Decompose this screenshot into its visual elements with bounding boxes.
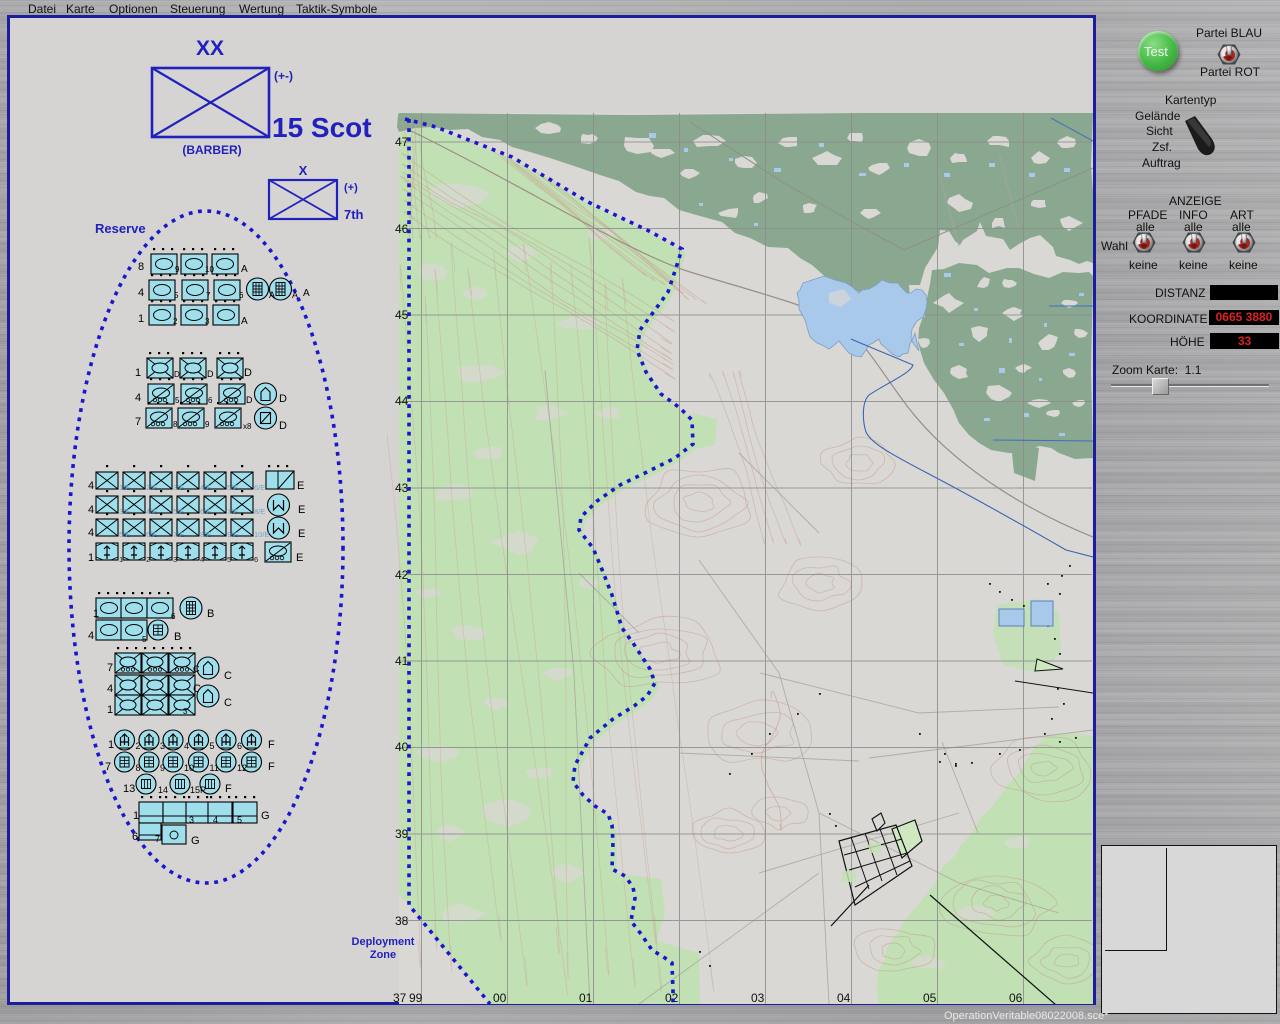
svg-text:9: 9	[175, 265, 180, 274]
svg-text:03: 03	[751, 991, 765, 1004]
svg-text:F: F	[268, 761, 275, 773]
svg-text:6: 6	[208, 396, 213, 405]
svg-text:8/E: 8/E	[254, 507, 265, 516]
svg-text:A: A	[241, 316, 248, 327]
svg-text:12: 12	[237, 763, 247, 773]
svg-text:G: G	[261, 810, 270, 822]
svg-text:1: 1	[107, 704, 113, 716]
svg-text:99: 99	[409, 991, 423, 1004]
svg-text:40: 40	[395, 740, 409, 754]
svg-text:7: 7	[107, 662, 113, 674]
svg-text:4: 4	[88, 527, 94, 539]
svg-text:3: 3	[160, 741, 165, 751]
svg-text:7th: 7th	[344, 207, 364, 222]
svg-text:9: 9	[160, 763, 165, 773]
svg-text:8: 8	[173, 420, 178, 429]
svg-text:10: 10	[184, 763, 194, 773]
svg-text:5: 5	[227, 555, 231, 564]
svg-text:1: 1	[138, 313, 144, 325]
svg-text:4: 4	[88, 630, 94, 642]
svg-text:4: 4	[88, 504, 94, 516]
svg-text:5: 5	[175, 396, 180, 405]
svg-text:F: F	[225, 783, 232, 795]
svg-text:D: D	[174, 370, 180, 379]
svg-text:G: G	[191, 835, 200, 847]
svg-text:D: D	[279, 420, 287, 432]
svg-text:5/E: 5/E	[119, 530, 130, 539]
svg-text:D: D	[244, 367, 252, 379]
svg-text:C: C	[193, 664, 200, 674]
svg-text:5/E: 5/E	[173, 507, 184, 516]
svg-text:A: A	[241, 264, 248, 275]
svg-text:7: 7	[135, 416, 141, 428]
svg-text:15 Scot: 15 Scot	[272, 112, 372, 143]
svg-text:1: 1	[133, 810, 139, 822]
svg-text:4: 4	[213, 815, 218, 825]
svg-text:D: D	[207, 369, 214, 379]
svg-text:7/E: 7/E	[227, 507, 238, 516]
svg-text:39: 39	[395, 827, 409, 841]
svg-text:(+): (+)	[344, 182, 358, 194]
svg-text:Reserve: Reserve	[95, 221, 146, 236]
svg-text:7: 7	[206, 291, 211, 300]
svg-text:E: E	[298, 504, 305, 516]
svg-text:5: 5	[142, 635, 147, 644]
svg-text:3/E: 3/E	[173, 483, 184, 492]
svg-text:3: 3	[205, 317, 210, 326]
svg-text:C: C	[224, 670, 232, 682]
svg-text:E: E	[296, 552, 303, 564]
svg-text:1/E: 1/E	[119, 483, 130, 492]
svg-text:A: A	[303, 288, 310, 299]
svg-text:04: 04	[837, 991, 851, 1004]
svg-text:37: 37	[393, 991, 407, 1004]
svg-text:6: 6	[237, 741, 242, 751]
svg-text:6/E: 6/E	[254, 483, 265, 492]
svg-text:4: 4	[135, 392, 141, 404]
svg-text:1: 1	[108, 739, 114, 751]
svg-text:7/E: 7/E	[173, 530, 184, 539]
svg-text:A: A	[292, 290, 298, 300]
svg-text:10/E: 10/E	[254, 530, 269, 539]
svg-text:F: F	[268, 739, 275, 751]
svg-text:4: 4	[184, 741, 189, 751]
svg-text:5: 5	[210, 741, 215, 751]
svg-text:9/E: 9/E	[227, 530, 238, 539]
svg-text:B: B	[174, 631, 181, 643]
svg-text:XX: XX	[196, 37, 224, 60]
svg-text:C: C	[224, 697, 232, 709]
svg-text:8/E: 8/E	[200, 530, 211, 539]
svg-text:1: 1	[119, 555, 123, 564]
svg-text:15P: 15P	[190, 785, 206, 795]
svg-text:44: 44	[395, 394, 409, 408]
svg-text:3: 3	[189, 815, 194, 825]
svg-text:D: D	[279, 393, 287, 405]
svg-text:5/E: 5/E	[227, 483, 238, 492]
svg-text:3: 3	[173, 555, 177, 564]
svg-text:x8: x8	[243, 422, 252, 431]
svg-text:2: 2	[173, 317, 178, 326]
svg-text:46: 46	[395, 222, 409, 236]
svg-text:1: 1	[88, 552, 94, 564]
svg-text:D: D	[246, 395, 253, 405]
svg-text:(+-): (+-)	[274, 69, 293, 83]
svg-text:14: 14	[158, 785, 168, 795]
svg-text:E: E	[298, 528, 305, 540]
svg-text:A: A	[269, 290, 275, 300]
svg-text:B: B	[207, 608, 214, 620]
svg-text:13: 13	[123, 783, 135, 795]
svg-text:1: 1	[135, 367, 141, 379]
svg-text:4: 4	[200, 555, 204, 564]
svg-text:4/E: 4/E	[200, 483, 211, 492]
svg-text:5: 5	[174, 291, 179, 300]
svg-text:8: 8	[138, 261, 144, 273]
svg-text:6: 6	[171, 612, 176, 621]
svg-text:00: 00	[493, 991, 507, 1004]
svg-text:2: 2	[136, 741, 141, 751]
svg-text:45: 45	[395, 308, 409, 322]
svg-text:(BARBER): (BARBER)	[182, 143, 241, 157]
svg-text:4/E: 4/E	[146, 507, 157, 516]
svg-text:4: 4	[107, 683, 113, 695]
svg-text:6/E: 6/E	[146, 530, 157, 539]
svg-text:1: 1	[93, 608, 99, 620]
svg-text:E: E	[297, 480, 304, 492]
svg-text:7: 7	[105, 761, 111, 773]
svg-text:11: 11	[210, 763, 219, 773]
svg-text:06: 06	[1009, 991, 1023, 1004]
svg-text:3: 3	[183, 707, 188, 716]
svg-text:9: 9	[205, 420, 210, 429]
svg-text:4: 4	[88, 480, 94, 492]
svg-text:10: 10	[205, 265, 214, 274]
svg-text:3/E: 3/E	[119, 507, 130, 516]
svg-text:5: 5	[237, 815, 242, 825]
svg-text:6: 6	[239, 291, 244, 300]
svg-text:43: 43	[395, 481, 409, 495]
svg-text:42: 42	[395, 568, 409, 582]
svg-text:05: 05	[923, 991, 937, 1004]
svg-text:38: 38	[395, 914, 409, 928]
svg-text:2/E: 2/E	[146, 483, 157, 492]
svg-text:X: X	[299, 163, 308, 178]
svg-text:6: 6	[132, 831, 138, 843]
svg-text:2: 2	[146, 555, 150, 564]
svg-text:41: 41	[395, 654, 409, 668]
svg-text:8: 8	[136, 763, 141, 773]
svg-text:6: 6	[254, 555, 258, 564]
svg-text:4: 4	[138, 287, 144, 299]
svg-text:01: 01	[579, 991, 593, 1004]
svg-text:6/E: 6/E	[200, 507, 211, 516]
svg-text:47: 47	[395, 135, 409, 149]
svg-text:7: 7	[155, 834, 160, 844]
